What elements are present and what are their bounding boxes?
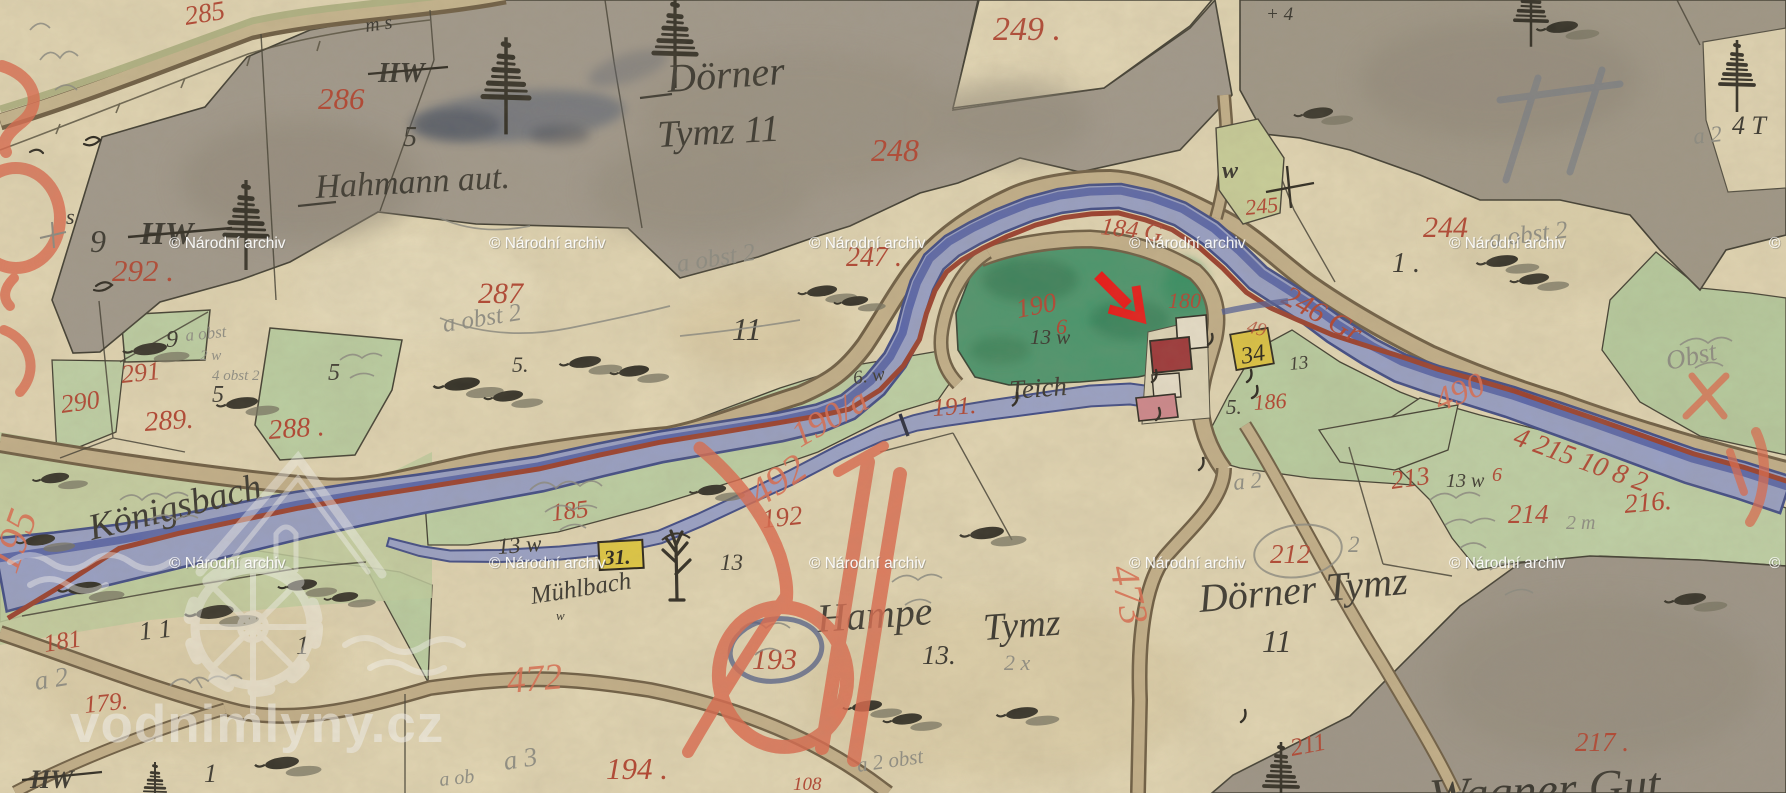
svg-text:© Národní archiv: © Národní archiv [1129,555,1246,572]
svg-text:© Národní archiv: © Národní archiv [809,555,926,572]
svg-text:© Národní archiv: © Národní archiv [1769,235,1786,252]
svg-text:© Národní archiv: © Národní archiv [1449,235,1566,252]
svg-text:© Národní archiv: © Národní archiv [489,235,606,252]
svg-text:© Národní archiv: © Národní archiv [809,235,926,252]
svg-text:© Národní archiv: © Národní archiv [1769,555,1786,572]
svg-text:© Národní archiv: © Národní archiv [1129,235,1246,252]
svg-text:© Národní archiv: © Národní archiv [169,235,286,252]
svg-text:© Národní archiv: © Národní archiv [489,555,606,572]
svg-text:© Národní archiv: © Národní archiv [169,555,286,572]
svg-text:© Národní archiv: © Národní archiv [1449,555,1566,572]
